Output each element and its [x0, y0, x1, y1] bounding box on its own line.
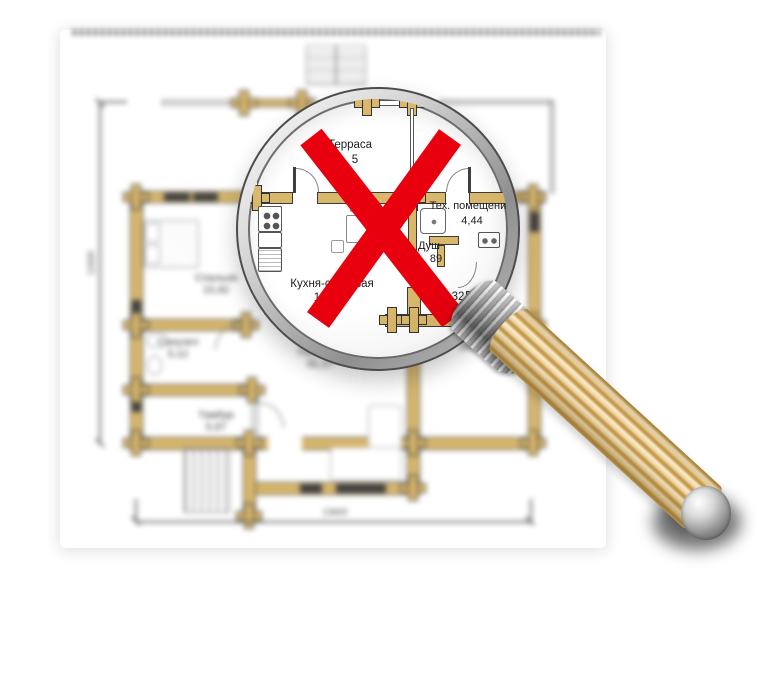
log-joint [123, 377, 149, 403]
room-name: Санузел [158, 336, 199, 348]
window-mark [193, 193, 218, 201]
handle-end-cap [681, 486, 731, 540]
room-name: Спальня [195, 272, 237, 284]
dimension-line-horizontal [135, 521, 530, 523]
extension-line [135, 499, 137, 523]
dimension-height: 11600 [86, 235, 96, 291]
staircase-bottom [184, 447, 230, 513]
log-joint [123, 430, 149, 456]
log-joint [239, 377, 265, 403]
log-joint [123, 184, 149, 210]
door-opening [268, 436, 302, 451]
room-area: 5,12 [168, 348, 188, 360]
top-edge-hatching [73, 30, 600, 35]
sofa [330, 447, 402, 481]
room-label-bedroom: Спальня 15,92 [178, 272, 254, 296]
log-joint [520, 430, 546, 456]
log-joint [236, 503, 262, 529]
room-name: Тамбур [198, 409, 234, 421]
window-mark [300, 484, 322, 493]
extension-line [530, 499, 532, 523]
dimension-value: 11600 [86, 251, 96, 275]
log-joint [123, 312, 149, 338]
room-area: 15,92 [203, 284, 229, 296]
floorplan-illustration: Спальня 15,92 Санузел 5,12 Тамбур 5,97 Г… [0, 0, 783, 690]
room-label-vestibule: Тамбур 5,97 [178, 409, 254, 433]
dimension-value: 13600 [322, 507, 347, 517]
log-joint [400, 430, 426, 456]
room-area: 5,97 [206, 421, 226, 433]
dimension-line-vertical [99, 103, 101, 443]
extension-line [99, 101, 127, 103]
staircase-rail [335, 45, 337, 85]
window-mark [336, 484, 386, 493]
log-joint [400, 475, 426, 501]
pillow [145, 245, 160, 264]
wall-segment [550, 101, 554, 193]
window-mark [164, 193, 190, 201]
log-joint [520, 184, 546, 210]
wall-bottom-lower [243, 482, 420, 495]
door-arc [258, 402, 284, 428]
dimension-width: 13600 [305, 507, 365, 517]
pillow [145, 223, 160, 242]
log-joint [236, 430, 262, 456]
window-mark [530, 212, 539, 232]
room-label-bathroom: Санузел 5,12 [140, 336, 216, 360]
